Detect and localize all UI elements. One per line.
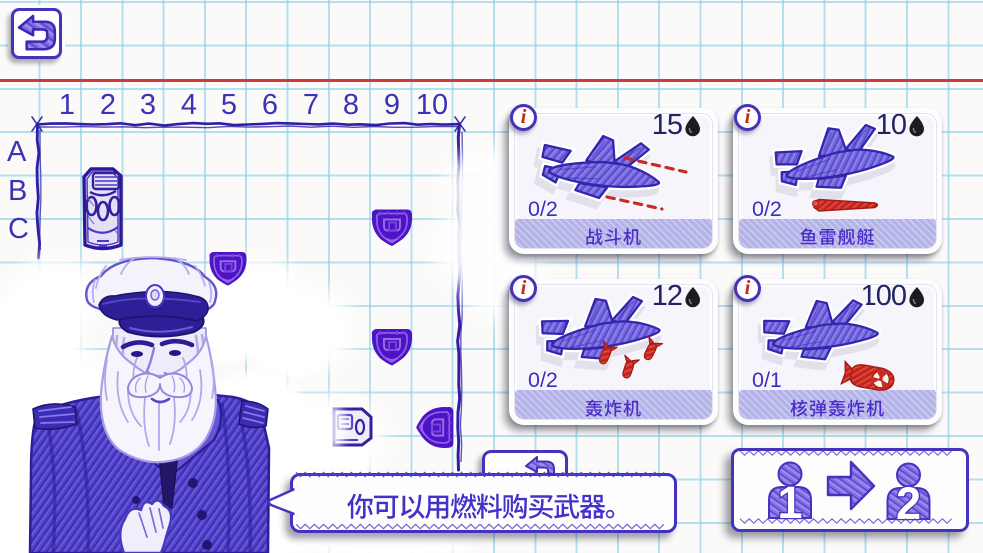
svg-text:7: 7 — [303, 89, 319, 121]
svg-text:A: A — [7, 136, 27, 168]
svg-text:8: 8 — [343, 89, 359, 121]
svg-text:3: 3 — [140, 89, 156, 121]
svg-text:B: B — [8, 175, 27, 207]
svg-text:6: 6 — [262, 89, 278, 121]
svg-text:C: C — [8, 213, 29, 245]
svg-text:2: 2 — [100, 89, 116, 121]
svg-text:4: 4 — [181, 89, 197, 121]
svg-text:1: 1 — [59, 89, 75, 121]
svg-text:9: 9 — [384, 89, 400, 121]
svg-text:5: 5 — [221, 89, 237, 121]
svg-text:10: 10 — [416, 89, 448, 121]
